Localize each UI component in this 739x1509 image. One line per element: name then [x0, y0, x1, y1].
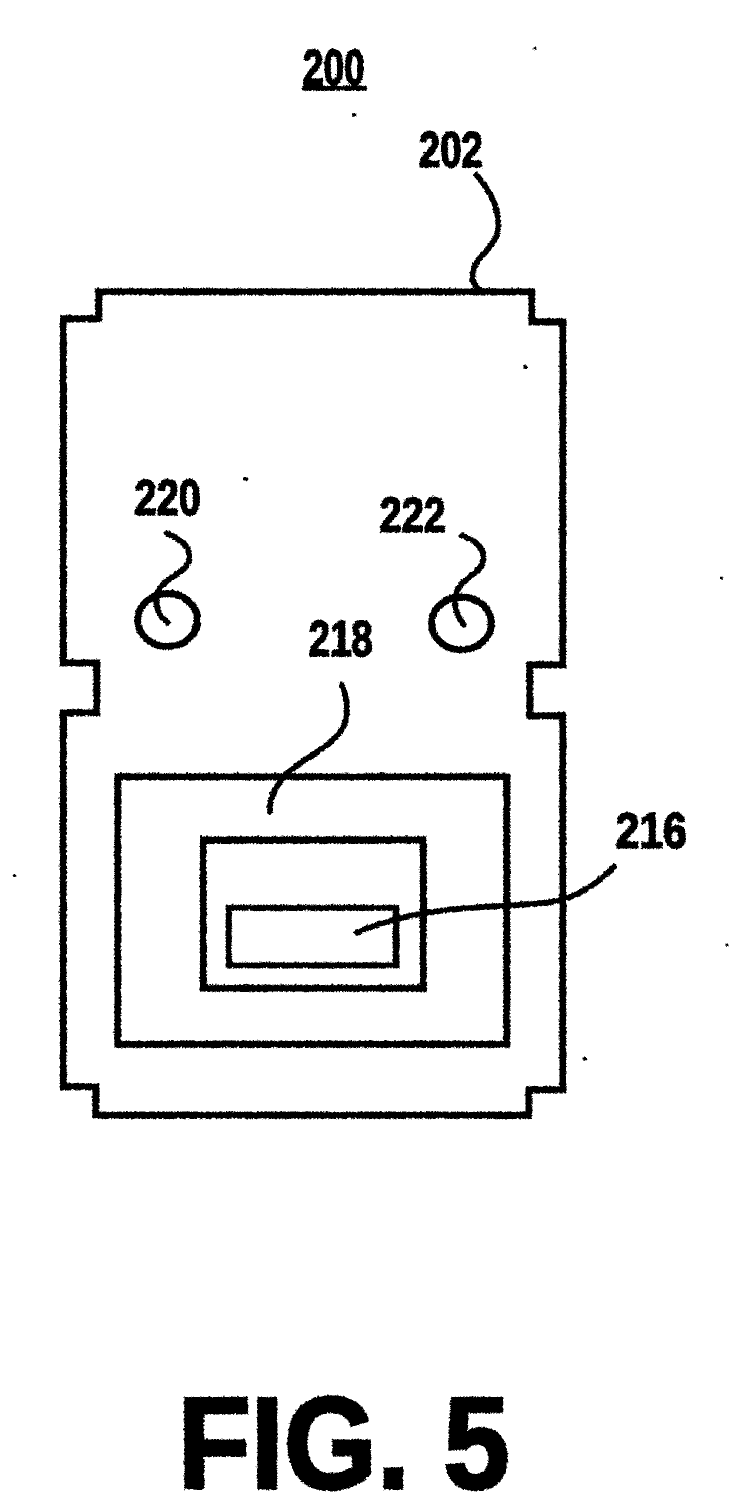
svg-text:216: 216	[615, 802, 686, 858]
svg-text:220: 220	[134, 469, 200, 525]
svg-text:222: 222	[379, 488, 445, 542]
svg-text:FIG. 5: FIG. 5	[177, 1369, 509, 1509]
svg-text:218: 218	[308, 610, 372, 666]
svg-text:202: 202	[418, 121, 482, 177]
